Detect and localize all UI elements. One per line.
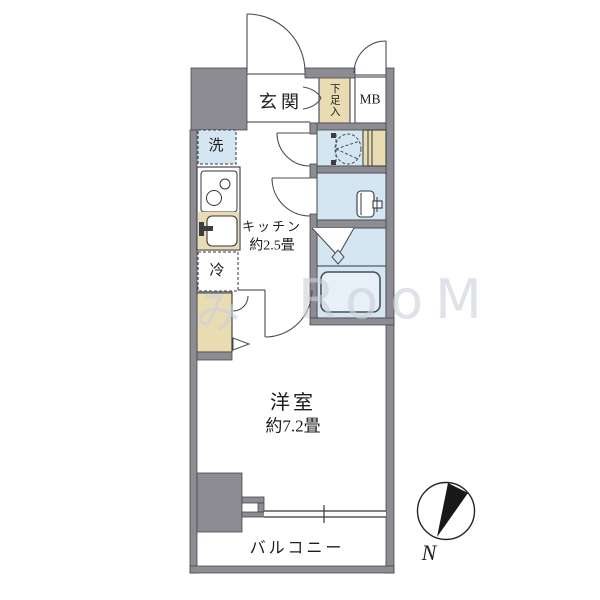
wall-entry-bottom [310, 123, 386, 130]
stove-icon [201, 171, 237, 212]
vanity-cabinet-icon [363, 130, 386, 166]
wall-top-band [305, 68, 355, 78]
main-room-label-line2: 約7.2畳 [265, 418, 320, 437]
wall-toilet-bath [317, 220, 386, 228]
basin-hinge-bottom [331, 160, 336, 165]
wall-core-1 [310, 123, 317, 134]
wall-under-closet [197, 352, 232, 360]
mb-label: MB [359, 93, 380, 108]
sink-icon [198, 212, 239, 249]
kitchen-label-line2: 約2.5畳 [249, 238, 295, 253]
wall-core-2 [310, 164, 317, 178]
north-label: N [422, 541, 437, 565]
balcony-label: バルコニー [250, 540, 345, 558]
closet-area [197, 293, 232, 352]
wall-pillar-bottom-left [197, 473, 242, 532]
wall-washroom-toilet [317, 166, 386, 173]
basin-hinge-top [331, 133, 336, 138]
compass-icon [418, 483, 475, 540]
wall-arm-top [242, 497, 264, 503]
toilet-area [317, 173, 386, 220]
fridge-label: 冷 [209, 263, 224, 280]
wall-left [190, 130, 197, 573]
floor-plan: 玄関 下足入 MB 洗 冷 キッチン 約2.5畳 洋室 約7.2畳 バルコニー … [0, 0, 600, 600]
washer-label: 洗 [208, 138, 223, 155]
wall-bath-bottom [310, 318, 394, 325]
entrance-door-arc [247, 14, 305, 72]
main-room-label-line1: 洋室 [270, 392, 316, 414]
floor-plan-drawing [0, 0, 600, 600]
genkan-label: 玄関 [259, 93, 303, 113]
kitchen-label-line1: キッチン [242, 220, 302, 234]
shoebox-label: 下足入 [328, 83, 340, 118]
wall-arm-right [258, 503, 264, 512]
bathtub-icon [321, 272, 380, 312]
wall-balcony-bottom [190, 566, 394, 573]
wall-top-left-pillar [191, 68, 247, 130]
